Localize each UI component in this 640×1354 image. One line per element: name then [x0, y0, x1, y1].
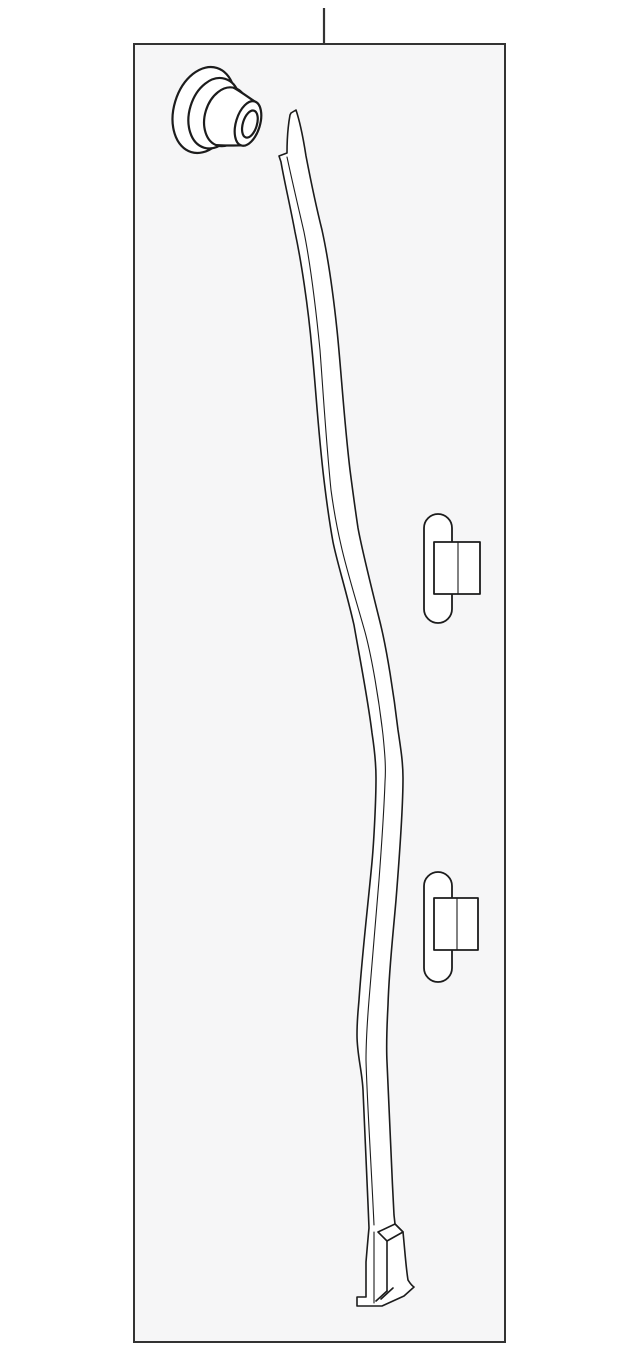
- parts-diagram: [0, 0, 640, 1354]
- clip-upper-tab: [434, 542, 480, 594]
- clip-lower-tab: [434, 898, 478, 950]
- diagram-canvas: [0, 0, 640, 1354]
